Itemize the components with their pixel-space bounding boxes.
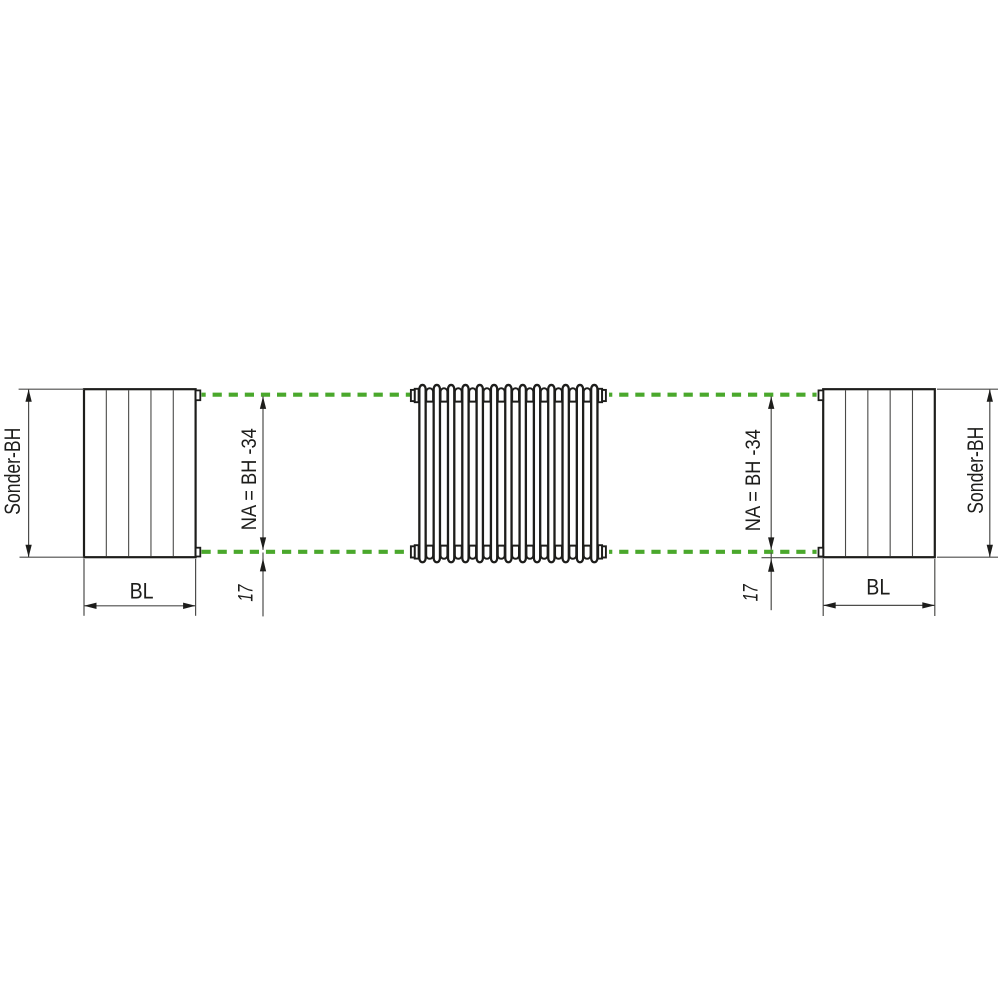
svg-text:BL: BL: [130, 578, 154, 603]
svg-text:17: 17: [235, 584, 258, 602]
svg-text:NA = BH -34: NA = BH -34: [238, 428, 261, 530]
svg-text:Sonder-BH: Sonder-BH: [0, 428, 25, 515]
svg-text:17: 17: [740, 583, 763, 601]
svg-text:Sonder-BH: Sonder-BH: [963, 427, 988, 514]
svg-text:BL: BL: [866, 574, 890, 599]
svg-text:NA = BH -34: NA = BH -34: [742, 429, 765, 531]
